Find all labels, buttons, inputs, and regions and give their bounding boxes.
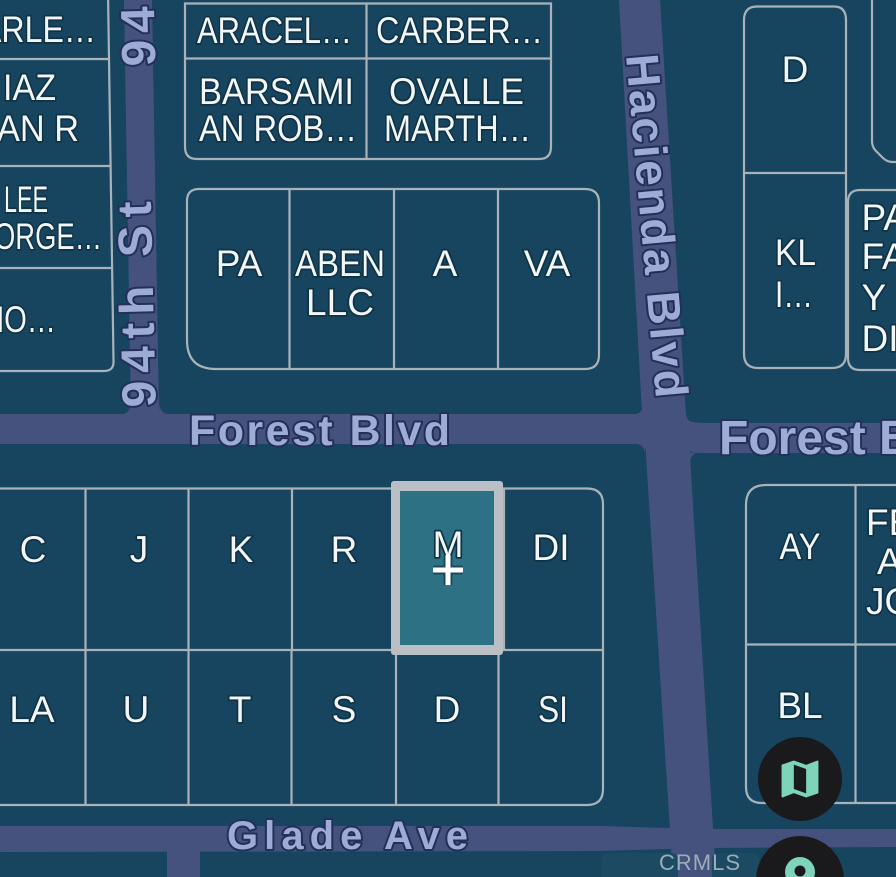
- svg-text:BARSAMI: BARSAMI: [199, 71, 354, 112]
- svg-text:ARACEL…: ARACEL…: [197, 10, 352, 51]
- svg-text:A: A: [877, 541, 896, 582]
- svg-text:AN R: AN R: [0, 108, 79, 149]
- svg-text:IAZ: IAZ: [3, 67, 56, 108]
- svg-text:D: D: [434, 689, 461, 730]
- svg-text:KL: KL: [775, 232, 816, 273]
- svg-text:U: U: [123, 689, 150, 730]
- svg-text:Forest Blvd: Forest Blvd: [719, 412, 896, 465]
- svg-text:SI: SI: [538, 689, 568, 730]
- svg-text:Y C: Y C: [862, 277, 896, 318]
- svg-text:ABEN: ABEN: [295, 243, 385, 284]
- svg-text:CARBER…: CARBER…: [376, 10, 543, 51]
- svg-text:I…: I…: [775, 274, 813, 315]
- svg-text:S: S: [332, 689, 357, 730]
- svg-text:FA: FA: [862, 236, 896, 277]
- svg-text:D: D: [782, 49, 809, 90]
- svg-text:C: C: [20, 529, 47, 570]
- svg-text:JO…: JO…: [866, 581, 896, 622]
- svg-text:K: K: [229, 529, 254, 570]
- svg-text:J: J: [130, 529, 149, 570]
- svg-text:Forest Blvd: Forest Blvd: [189, 407, 450, 455]
- svg-text:PA: PA: [862, 197, 896, 238]
- svg-text:T: T: [229, 689, 252, 730]
- svg-text:DIT…: DIT…: [862, 318, 896, 359]
- svg-text:VA: VA: [524, 243, 571, 284]
- svg-text:CRMLS: CRMLS: [659, 850, 741, 875]
- svg-text:LEE: LEE: [4, 179, 48, 220]
- svg-text:DI: DI: [533, 527, 570, 568]
- svg-text:AY: AY: [780, 526, 821, 567]
- svg-text:LA: LA: [9, 689, 55, 730]
- svg-text:ORGE…: ORGE…: [0, 216, 102, 257]
- svg-text:BL: BL: [777, 685, 822, 726]
- svg-text:A: A: [433, 243, 458, 284]
- svg-text:ARLE…: ARLE…: [0, 9, 96, 50]
- svg-text:NO…: NO…: [0, 299, 56, 340]
- svg-text:OVALLE: OVALLE: [389, 71, 524, 112]
- svg-text:FE: FE: [866, 502, 896, 543]
- svg-text:MARTH…: MARTH…: [384, 108, 531, 149]
- svg-text:R: R: [331, 529, 358, 570]
- svg-text:AN ROB…: AN ROB…: [199, 108, 357, 149]
- svg-text:LLC: LLC: [306, 282, 374, 323]
- svg-text:PA: PA: [216, 243, 263, 284]
